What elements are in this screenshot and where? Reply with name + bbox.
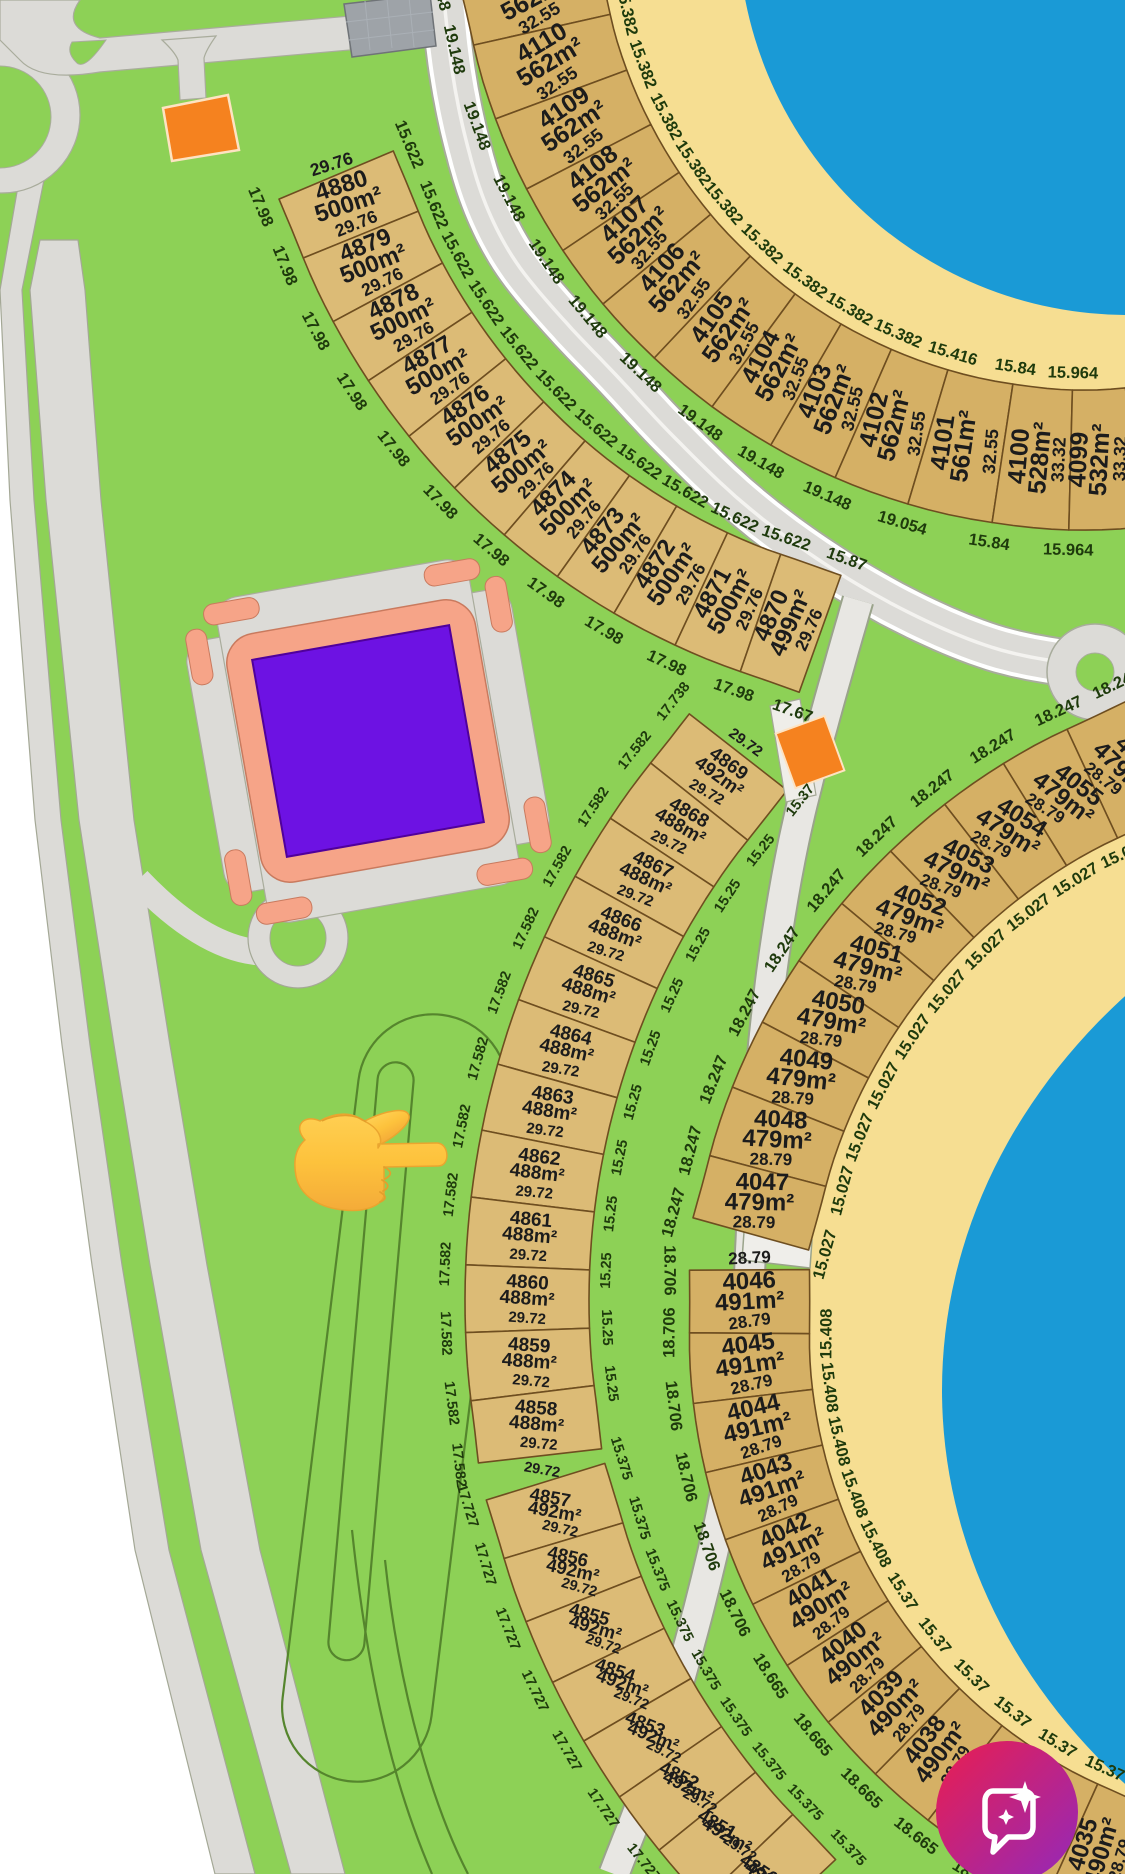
svg-text:29.72: 29.72 bbox=[509, 1246, 548, 1266]
svg-text:32.55: 32.55 bbox=[979, 428, 1003, 475]
svg-text:29.72: 29.72 bbox=[512, 1371, 551, 1391]
svg-text:33.32: 33.32 bbox=[1109, 436, 1125, 482]
svg-text:28.79: 28.79 bbox=[728, 1247, 771, 1268]
svg-text:28.79: 28.79 bbox=[749, 1150, 792, 1170]
svg-text:18.706: 18.706 bbox=[660, 1245, 678, 1296]
svg-text:18.706: 18.706 bbox=[660, 1307, 678, 1358]
svg-text:33.32: 33.32 bbox=[1047, 437, 1069, 483]
svg-text:28.79: 28.79 bbox=[771, 1087, 814, 1108]
svg-text:488m²: 488m² bbox=[501, 1350, 557, 1375]
svg-text:488m²: 488m² bbox=[499, 1287, 555, 1312]
svg-text:15.25: 15.25 bbox=[598, 1309, 615, 1346]
svg-text:28.79: 28.79 bbox=[733, 1212, 776, 1232]
svg-text:29.72: 29.72 bbox=[508, 1309, 547, 1329]
svg-text:15.964: 15.964 bbox=[1043, 540, 1095, 559]
svg-text:29.72: 29.72 bbox=[519, 1434, 558, 1454]
svg-text:15.408: 15.408 bbox=[817, 1309, 835, 1360]
svg-text:17.582: 17.582 bbox=[437, 1311, 455, 1356]
svg-text:15.964: 15.964 bbox=[1047, 363, 1099, 382]
svg-text:17.582: 17.582 bbox=[437, 1242, 455, 1287]
svg-text:15.25: 15.25 bbox=[598, 1252, 616, 1289]
svg-text:29.72: 29.72 bbox=[515, 1182, 554, 1202]
